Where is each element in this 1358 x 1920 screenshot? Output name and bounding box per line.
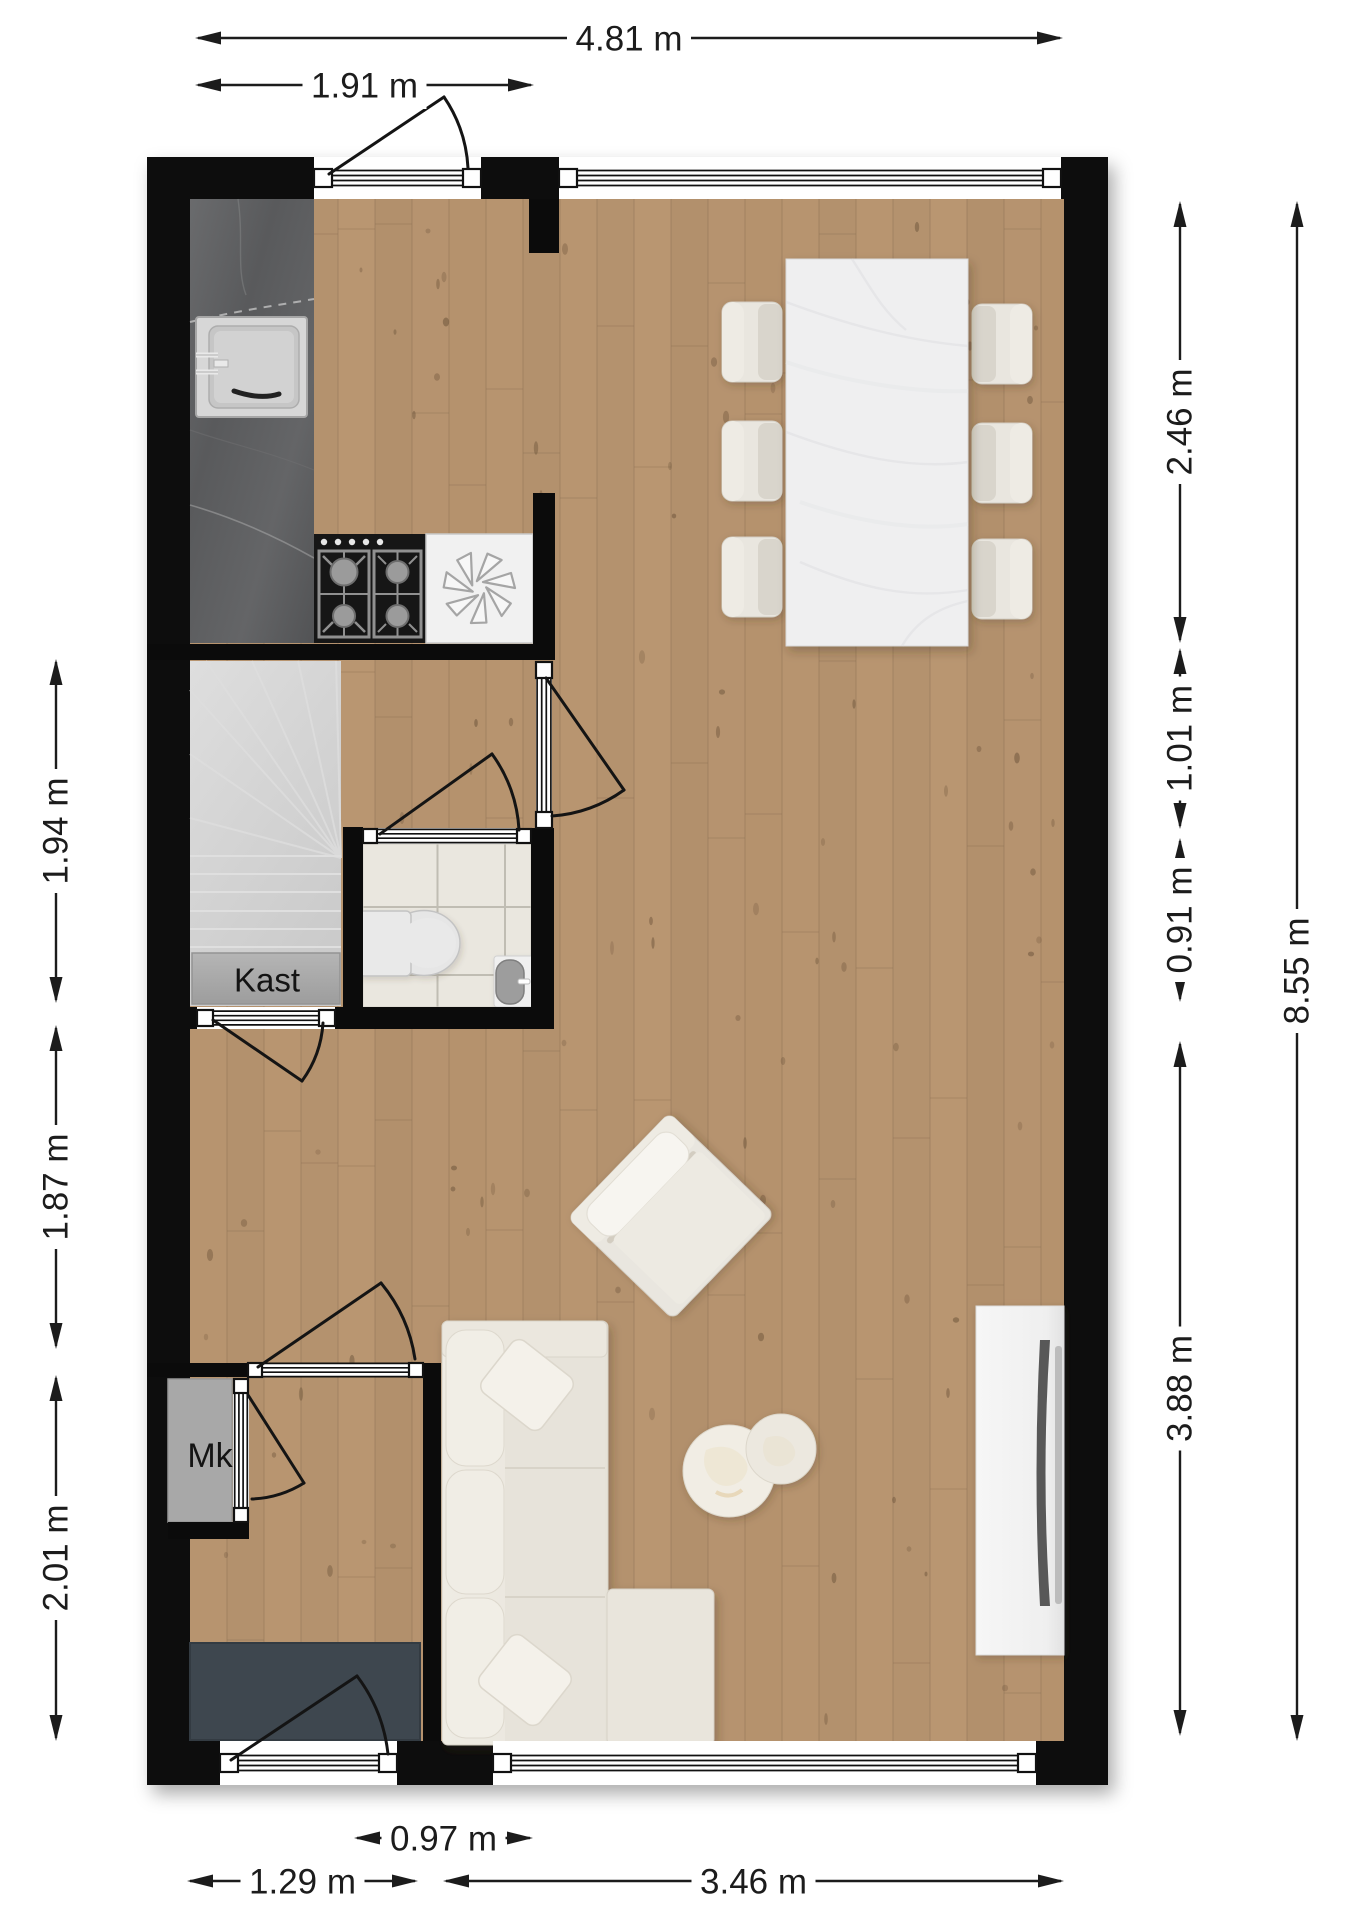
svg-text:3.46 m: 3.46 m [700, 1863, 807, 1902]
svg-text:2.01 m: 2.01 m [37, 1505, 76, 1612]
svg-text:1.94 m: 1.94 m [37, 778, 76, 885]
svg-text:8.55 m: 8.55 m [1278, 918, 1317, 1025]
svg-text:Kast: Kast [234, 962, 300, 999]
svg-text:Mk: Mk [187, 1437, 233, 1475]
svg-text:1.91 m: 1.91 m [311, 67, 418, 106]
svg-text:1.87 m: 1.87 m [37, 1134, 76, 1241]
svg-text:1.01 m: 1.01 m [1161, 685, 1200, 792]
svg-text:2.46 m: 2.46 m [1161, 369, 1200, 476]
svg-text:0.91 m: 0.91 m [1161, 867, 1200, 974]
svg-text:0.97 m: 0.97 m [390, 1820, 497, 1859]
svg-text:1.29 m: 1.29 m [249, 1863, 356, 1902]
svg-text:3.88 m: 3.88 m [1161, 1335, 1200, 1442]
svg-text:4.81 m: 4.81 m [576, 20, 683, 59]
